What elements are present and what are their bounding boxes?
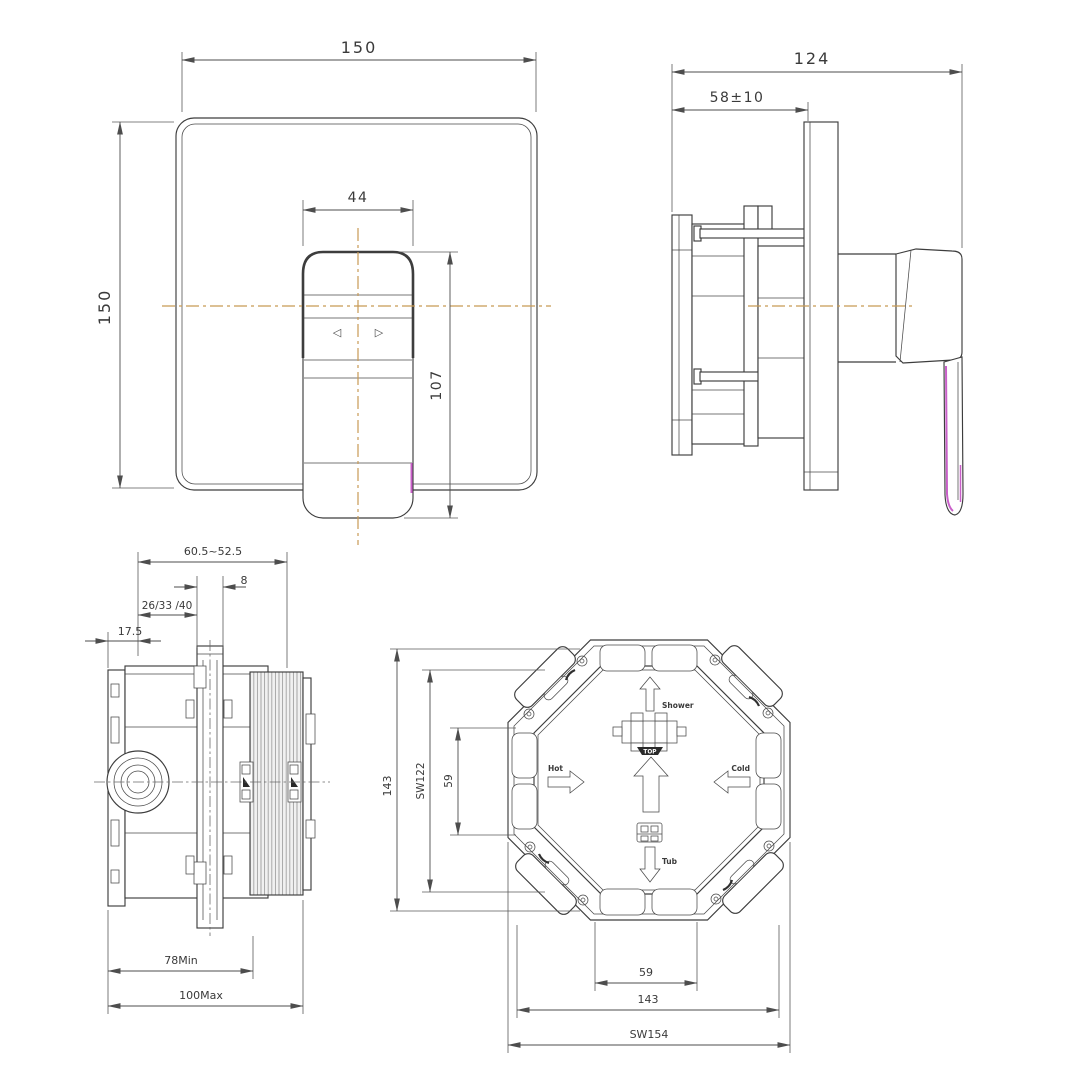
dim-text: 143 [381,776,394,797]
cartridge-nub [613,727,622,736]
dim-text: 59 [443,774,455,787]
valve-front-view: Shower TOP Hot Cold [380,560,1090,1090]
dim-text: 17.5 [118,625,143,638]
stem-lug [224,856,232,874]
dim-text: 58±10 [710,90,765,106]
hot-label: Hot [548,764,563,773]
window [756,784,781,829]
window [512,784,537,829]
tub-label: Tub [662,857,678,866]
dim-text: 60.5~52.5 [184,545,242,558]
mounting-bracket [672,215,692,455]
dim-text: SW122 [415,762,427,799]
dim-text: SW154 [630,1028,669,1041]
cartridge-body [622,721,677,743]
dim-text: 78Min [164,954,198,967]
stem-lug [224,700,232,718]
window [652,889,697,915]
cartridge-block [758,246,806,438]
top-label: TOP [643,750,657,756]
handle-right-arrow-glyph: ▷ [375,326,384,339]
window [600,889,645,915]
tub-port-icon [637,823,662,842]
sleeve-rim [303,678,311,890]
technical-drawing-canvas: ◁ ▷ 150 150 44 [0,0,1090,1090]
window [600,645,645,671]
dim-text: 44 [348,190,369,206]
stem-lug [186,700,194,718]
rough-valve-body [94,640,330,936]
dim-depth-options: 26/33 /40 [138,600,197,615]
cartridge-nub [677,727,686,736]
rim-tab [306,714,315,744]
dim-plate-width: 150 [182,38,536,112]
dim-port-spacing-horizontal: 59 [595,922,697,991]
dim-text: 124 [794,49,831,68]
shower-label: Shower [662,701,694,710]
stem-clip [194,862,206,884]
dim-offset: 17.5 [85,625,161,668]
side-view: 124 58±10 [600,0,1090,560]
front-view: ◁ ▷ 150 150 44 [0,0,600,560]
fixing-bolt [700,229,806,238]
cold-label: Cold [731,764,750,773]
cartridge-post [655,713,667,721]
window [512,733,537,778]
dim-text: 107 [429,369,445,400]
valve-body-side [672,206,806,455]
handle-left-arrow-glyph: ◁ [333,326,342,339]
dim-port-spacing-vertical: 59 [443,728,516,835]
cartridge-post [631,713,643,721]
stem-clip [194,666,206,688]
handle-head-profile [896,249,962,363]
dim-text: 59 [639,966,653,979]
stem-lug [186,856,194,874]
dim-text: 8 [241,574,248,587]
dim-text: 26/33 /40 [142,600,193,612]
dim-text: 150 [341,38,378,57]
dim-text: 143 [638,993,659,1006]
valve-side-view: 60.5~52.5 8 26/33 /40 17.5 78Min [0,560,380,1090]
dim-wall-depth: 58±10 [672,90,808,121]
mounting-plate [744,206,758,446]
dim-plate-height: 150 [95,122,174,488]
dim-text: 150 [95,289,114,326]
rim-tab [306,820,315,838]
cartridge-stem [758,206,772,230]
window [756,733,781,778]
dim-text: 100Max [179,989,223,1002]
window [652,645,697,671]
handle-side [838,249,963,515]
